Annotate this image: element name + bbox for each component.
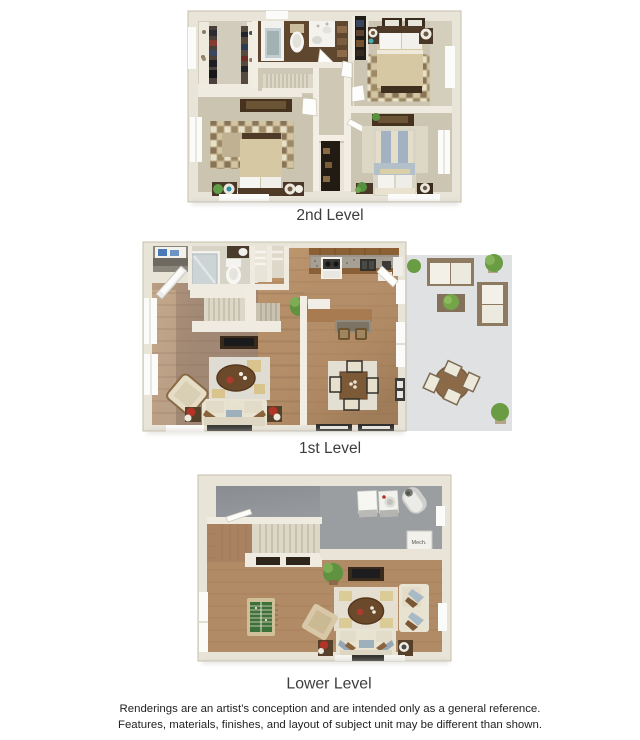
svg-text:Renderings are an artist’s con: Renderings are an artist’s conception an… <box>120 703 541 715</box>
svg-text:Mech.: Mech. <box>412 540 427 546</box>
svg-text:Features, materials, finishes,: Features, materials, finishes, and layou… <box>118 719 542 731</box>
svg-text:2nd Level: 2nd Level <box>296 207 363 224</box>
svg-text:1st Level: 1st Level <box>299 440 361 457</box>
svg-text:Lower Level: Lower Level <box>286 676 371 693</box>
